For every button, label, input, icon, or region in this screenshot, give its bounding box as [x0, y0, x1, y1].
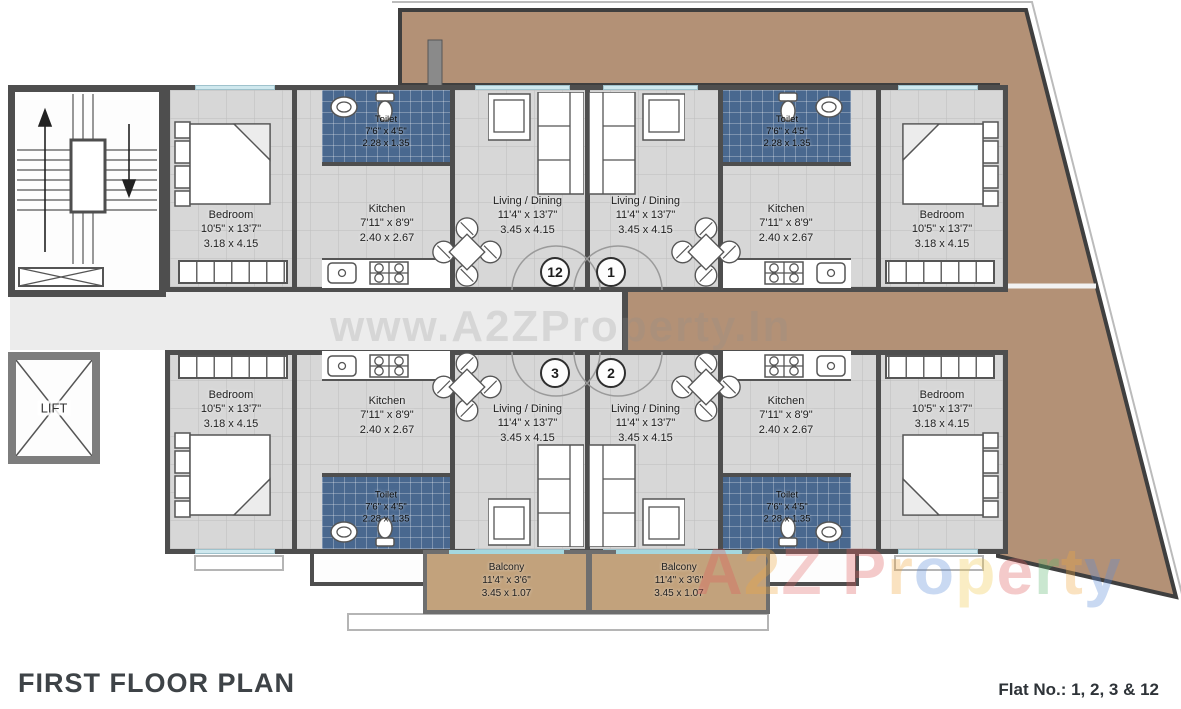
room-name: Living / Dining	[470, 402, 585, 416]
bedroom-partition-wall	[876, 355, 881, 549]
room-size-ft: 10'5" x 13'7"	[170, 222, 292, 236]
lift: LIFT	[8, 352, 100, 464]
living-window	[475, 85, 570, 90]
room-size-ft: 7'6" x 4'5"	[322, 501, 450, 513]
toilet-room: Toilet 7'6" x 4'5" 2.28 x 1.35	[322, 473, 450, 549]
unit-number-12: 12	[540, 257, 570, 287]
room-name: Toilet	[723, 489, 851, 501]
unit-number-1: 1	[596, 257, 626, 287]
toilet-label: Toilet 7'6" x 4'5" 2.28 x 1.35	[723, 489, 851, 525]
room-size-ft: 10'5" x 13'7"	[170, 402, 292, 416]
bed-icon	[899, 120, 999, 208]
room-size-ft: 11'4" x 13'7"	[470, 416, 585, 430]
living-dining-label: Living / Dining 11'4" x 13'7" 3.45 x 4.1…	[588, 194, 703, 237]
balcony-label: Balcony 11'4" x 3'6" 3.45 x 1.07	[427, 554, 586, 600]
floor-plan-canvas: LIFT Toilet 7'6" x 4'5" 2.28 x 1.35 Bedr…	[0, 0, 1181, 709]
bedroom-partition-wall	[292, 355, 297, 549]
room-size-ft: 7'6" x 4'5"	[723, 126, 851, 138]
room-name: Kitchen	[322, 202, 452, 216]
wardrobe	[178, 260, 288, 284]
living-dining-label: Living / Dining 11'4" x 13'7" 3.45 x 4.1…	[588, 402, 703, 445]
kitchen-label: Kitchen 7'11" x 8'9" 2.40 x 2.67	[322, 202, 452, 245]
room-name: Bedroom	[881, 388, 1003, 402]
living-dining-label: Living / Dining 11'4" x 13'7" 3.45 x 4.1…	[470, 402, 585, 445]
stair-landing	[71, 140, 105, 212]
service-duct-left	[312, 552, 427, 584]
room-name: Bedroom	[170, 388, 292, 402]
room-size-m: 2.28 x 1.35	[322, 513, 450, 525]
kitchen-label: Kitchen 7'11" x 8'9" 2.40 x 2.67	[721, 202, 851, 245]
bedroom-window	[195, 85, 275, 90]
room-name: Bedroom	[170, 208, 292, 222]
living-dining-label: Living / Dining 11'4" x 13'7" 3.45 x 4.1…	[470, 194, 585, 237]
room-name: Living / Dining	[588, 194, 703, 208]
sofa-icon	[488, 443, 584, 547]
room-size-ft: 7'11" x 8'9"	[322, 408, 452, 422]
room-name: Toilet	[723, 114, 851, 126]
toilet-label: Toilet 7'6" x 4'5" 2.28 x 1.35	[723, 114, 851, 150]
room-size-m: 3.45 x 4.15	[470, 431, 585, 445]
room-size-ft: 10'5" x 13'7"	[881, 222, 1003, 236]
bedroom-window	[898, 85, 978, 90]
staircase	[8, 85, 166, 297]
bedroom-partition-wall	[292, 90, 297, 287]
kitchen-counter	[322, 258, 450, 288]
room-name: Living / Dining	[470, 194, 585, 208]
toilet-label: Toilet 7'6" x 4'5" 2.28 x 1.35	[322, 489, 450, 525]
room-name: Balcony	[427, 561, 586, 574]
kitchen-counter	[723, 351, 851, 381]
flat-2: Toilet 7'6" x 4'5" 2.28 x 1.35 Bedroom 1…	[585, 350, 1008, 554]
room-size-m: 2.40 x 2.67	[322, 231, 452, 245]
room-size-ft: 7'11" x 8'9"	[322, 216, 452, 230]
room-size-m: 2.40 x 2.67	[721, 423, 851, 437]
room-size-m: 3.18 x 4.15	[881, 417, 1003, 431]
kitchen-label: Kitchen 7'11" x 8'9" 2.40 x 2.67	[721, 394, 851, 437]
toilet-room: Toilet 7'6" x 4'5" 2.28 x 1.35	[322, 90, 450, 166]
room-size-ft: 11'4" x 13'7"	[588, 416, 703, 430]
room-size-m: 3.45 x 4.15	[588, 223, 703, 237]
sofa-icon	[488, 92, 584, 196]
flat-numbers-note: Flat No.: 1, 2, 3 & 12	[998, 680, 1159, 700]
sink-stove-icon	[322, 260, 446, 286]
room-size-ft: 7'11" x 8'9"	[721, 216, 851, 230]
stair-up-arrow	[39, 110, 51, 252]
balcony-left: Balcony 11'4" x 3'6" 3.45 x 1.07	[423, 550, 590, 614]
bed-icon	[174, 120, 274, 208]
room-name: Toilet	[322, 114, 450, 126]
stairs-drawing	[15, 92, 159, 290]
room-name: Bedroom	[881, 208, 1003, 222]
room-size-m: 3.18 x 4.15	[170, 237, 292, 251]
bedroom-label: Bedroom 10'5" x 13'7" 3.18 x 4.15	[170, 388, 292, 431]
balcony-sliding-door	[449, 550, 563, 554]
chajja-outline-left	[195, 556, 283, 570]
room-size-ft: 11'4" x 13'7"	[470, 208, 585, 222]
under-balcony-outline	[348, 614, 768, 630]
page-title: FIRST FLOOR PLAN	[18, 668, 295, 699]
room-size-m: 3.18 x 4.15	[170, 417, 292, 431]
terrace-wall-stub	[428, 40, 442, 87]
room-size-m: 3.45 x 1.07	[427, 587, 586, 600]
sink-stove-icon	[727, 260, 851, 286]
sink-stove-icon	[322, 353, 446, 379]
room-size-m: 2.40 x 2.67	[721, 231, 851, 245]
room-name: Living / Dining	[588, 402, 703, 416]
wardrobe	[178, 355, 288, 379]
living-window	[603, 85, 698, 90]
bedroom-label: Bedroom 10'5" x 13'7" 3.18 x 4.15	[170, 208, 292, 251]
room-size-ft: 7'6" x 4'5"	[322, 126, 450, 138]
sofa-icon	[589, 92, 685, 196]
bedroom-window	[195, 549, 275, 554]
kitchen-counter	[723, 258, 851, 288]
flat-1: Toilet 7'6" x 4'5" 2.28 x 1.35 Bedroom 1…	[585, 85, 1008, 292]
room-size-m: 2.28 x 1.35	[322, 138, 450, 150]
room-name: Kitchen	[322, 394, 452, 408]
flat-3: Toilet 7'6" x 4'5" 2.28 x 1.35 Bedroom 1…	[165, 350, 590, 554]
kitchen-counter	[322, 351, 450, 381]
room-size-ft: 11'4" x 3'6"	[427, 574, 586, 587]
center-watermark: www.A2ZProperty.In	[330, 302, 791, 352]
unit-number-2: 2	[596, 358, 626, 388]
room-size-m: 3.45 x 4.15	[470, 223, 585, 237]
room-size-ft: 7'6" x 4'5"	[723, 501, 851, 513]
wardrobe	[885, 355, 995, 379]
brand-watermark: A2Z Property	[695, 533, 1122, 609]
room-size-ft: 11'4" x 13'7"	[588, 208, 703, 222]
room-size-ft: 7'11" x 8'9"	[721, 408, 851, 422]
lift-label: LIFT	[38, 401, 71, 416]
kitchen-label: Kitchen 7'11" x 8'9" 2.40 x 2.67	[322, 394, 452, 437]
room-size-m: 3.18 x 4.15	[881, 237, 1003, 251]
room-name: Kitchen	[721, 394, 851, 408]
bedroom-partition-wall	[876, 90, 881, 287]
toilet-label: Toilet 7'6" x 4'5" 2.28 x 1.35	[322, 114, 450, 150]
room-size-m: 2.28 x 1.35	[723, 138, 851, 150]
toilet-room: Toilet 7'6" x 4'5" 2.28 x 1.35	[723, 90, 851, 166]
room-size-m: 2.40 x 2.67	[322, 423, 452, 437]
sink-stove-icon	[727, 353, 851, 379]
wardrobe	[885, 260, 995, 284]
unit-number-3: 3	[540, 358, 570, 388]
bed-icon	[174, 431, 274, 519]
room-name: Kitchen	[721, 202, 851, 216]
room-name: Toilet	[322, 489, 450, 501]
bedroom-label: Bedroom 10'5" x 13'7" 3.18 x 4.15	[881, 208, 1003, 251]
flat-12: Toilet 7'6" x 4'5" 2.28 x 1.35 Bedroom 1…	[165, 85, 590, 292]
stair-section-box	[19, 268, 103, 286]
room-size-ft: 10'5" x 13'7"	[881, 402, 1003, 416]
sofa-icon	[589, 443, 685, 547]
room-size-m: 3.45 x 4.15	[588, 431, 703, 445]
room-size-m: 2.28 x 1.35	[723, 513, 851, 525]
bed-icon	[899, 431, 999, 519]
bedroom-label: Bedroom 10'5" x 13'7" 3.18 x 4.15	[881, 388, 1003, 431]
